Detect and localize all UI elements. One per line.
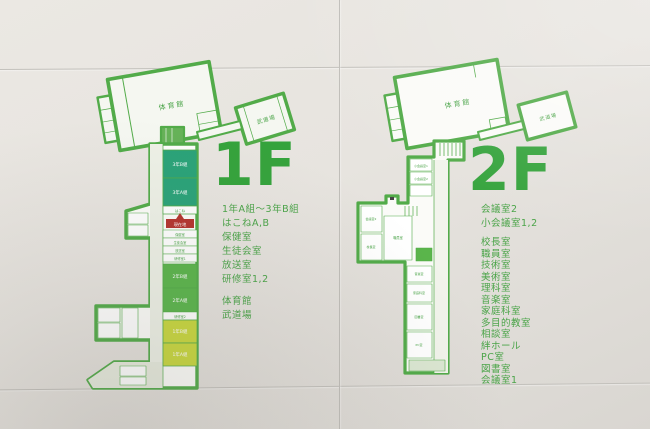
- floor1-legend-classrooms: 1年A組〜3年B組 はこねA,B 保健室 生徒会室 放送室 研修室1,2: [222, 203, 299, 287]
- floor2-room-meeting2-label: 会議室2: [366, 216, 377, 221]
- legend-line: 1年A組〜3年B組: [222, 203, 299, 217]
- floor2-stair-landing: [416, 248, 432, 261]
- floor1-annex-room: [128, 225, 148, 236]
- floor2-room-upper: [410, 185, 432, 196]
- floor2-heading: 2F: [468, 140, 553, 200]
- legend-line: 理科室: [481, 283, 531, 295]
- legend-line: 会議室2: [481, 203, 538, 217]
- floor1-room-2a-label: 2年A組: [173, 297, 188, 304]
- floor2-legend-rooms: 校長室 職員室 技術室 美術室 理科室 音楽室 家庭科室 多目的教室 相談室 絆…: [481, 237, 531, 387]
- floor1-corridor: [150, 144, 163, 362]
- legend-line: 美術室: [481, 272, 531, 284]
- floor2-room-meeting-s1-label: 小会議室1: [414, 163, 428, 168]
- floor2-room-staff-label: 職員室: [393, 235, 403, 240]
- floor1-room-hoso-label: 放送室: [175, 248, 185, 253]
- floor1-annex-room: [98, 323, 120, 338]
- floor1-room-1b-label: 1年B組: [173, 328, 188, 335]
- you-are-here-label: 現在地: [174, 221, 187, 228]
- floor2-dojo-block: 武道場: [518, 92, 576, 140]
- floor1-vestibule: [161, 127, 184, 144]
- floor2-room-homeec-label: 家庭科室: [413, 290, 425, 295]
- floor2-corridor: [434, 160, 448, 373]
- floor1-room-kenshu1-label: 研修室1: [174, 256, 186, 261]
- floor2-room-principal-label: 校長室: [366, 244, 375, 249]
- floor1-annex-room: [128, 213, 148, 224]
- floor1-annex-room: [122, 308, 138, 338]
- floor1-annex-room: [98, 308, 120, 322]
- wall-photo: 体育館 武道場 3年B組 3年A: [0, 0, 650, 429]
- floor1-room-hakone-label: はこね: [175, 208, 186, 213]
- legend-line: はこねA,B: [222, 217, 299, 231]
- legend-line: 小会議室1,2: [481, 217, 538, 231]
- legend-line: 相談室: [481, 329, 531, 341]
- floor1-room-kenshu2-label: 研修室2: [174, 314, 186, 319]
- floor-plans: 体育館 武道場 3年B組 3年A: [0, 0, 650, 429]
- legend-line: 研修室1,2: [222, 273, 299, 287]
- legend-line: 絆ホール: [481, 341, 531, 353]
- floor2-room-pc-label: PC室: [416, 342, 423, 347]
- floor1-room-1a-label: 1年A組: [173, 351, 188, 358]
- legend-line: 体育館: [222, 295, 252, 309]
- floor1-annex-room: [120, 366, 146, 376]
- legend-line: 多目的教室: [481, 318, 531, 330]
- floor2-plan: 体育館 武道場 小会議室1: [358, 60, 576, 373]
- floor1-room-3a-label: 3年A組: [173, 189, 188, 196]
- legend-line: 校長室: [481, 237, 531, 249]
- floor1-room-seitokai-label: 生徒会室: [174, 240, 187, 245]
- floor2-room-music-label: 音楽室: [414, 271, 423, 276]
- legend-line: 会議室1: [481, 375, 531, 387]
- legend-line: 音楽室: [481, 295, 531, 307]
- floor1-heading: 1F: [212, 135, 297, 195]
- legend-line: 武道場: [222, 309, 252, 323]
- floor2-legend-meeting: 会議室2 小会議室1,2: [481, 203, 538, 231]
- legend-line: 保健室: [222, 231, 299, 245]
- floor2-room-light: [409, 360, 445, 371]
- floor1-room-3b-label: 3年B組: [173, 161, 188, 168]
- legend-line: 家庭科室: [481, 306, 531, 318]
- legend-line: 放送室: [222, 259, 299, 273]
- floor2-roof-marker: [390, 197, 394, 200]
- floor1-room-2b-label: 2年B組: [173, 273, 188, 280]
- legend-line: 技術室: [481, 260, 531, 272]
- floor2-room-library-label: 図書室: [414, 314, 423, 319]
- floor2-room-meeting-s2-label: 小会議室2: [414, 176, 428, 181]
- legend-line: 生徒会室: [222, 245, 299, 259]
- floor1-annex-room: [120, 377, 146, 385]
- floor1-legend-facilities: 体育館 武道場: [222, 295, 252, 323]
- legend-line: 職員室: [481, 249, 531, 261]
- legend-line: PC室: [481, 352, 531, 364]
- floor1-room-hoken-label: 保健室: [175, 232, 185, 237]
- legend-line: 図書室: [481, 364, 531, 376]
